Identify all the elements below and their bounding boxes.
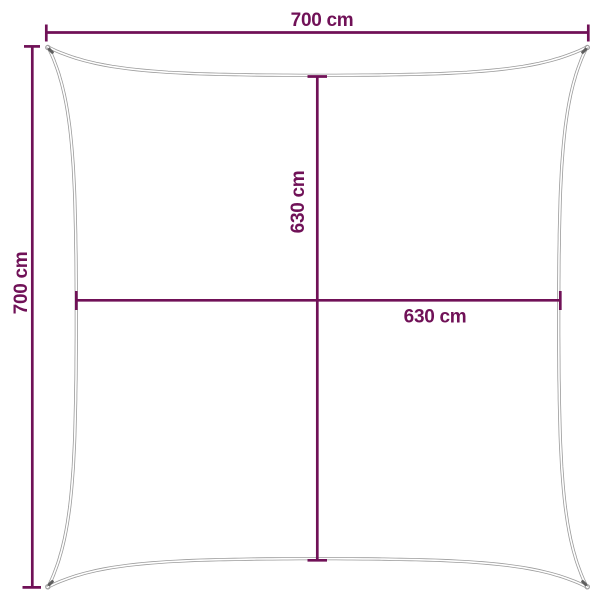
- svg-text:700 cm: 700 cm: [11, 252, 32, 315]
- svg-text:700 cm: 700 cm: [291, 10, 354, 31]
- svg-text:630 cm: 630 cm: [288, 171, 309, 234]
- svg-text:630 cm: 630 cm: [404, 306, 467, 327]
